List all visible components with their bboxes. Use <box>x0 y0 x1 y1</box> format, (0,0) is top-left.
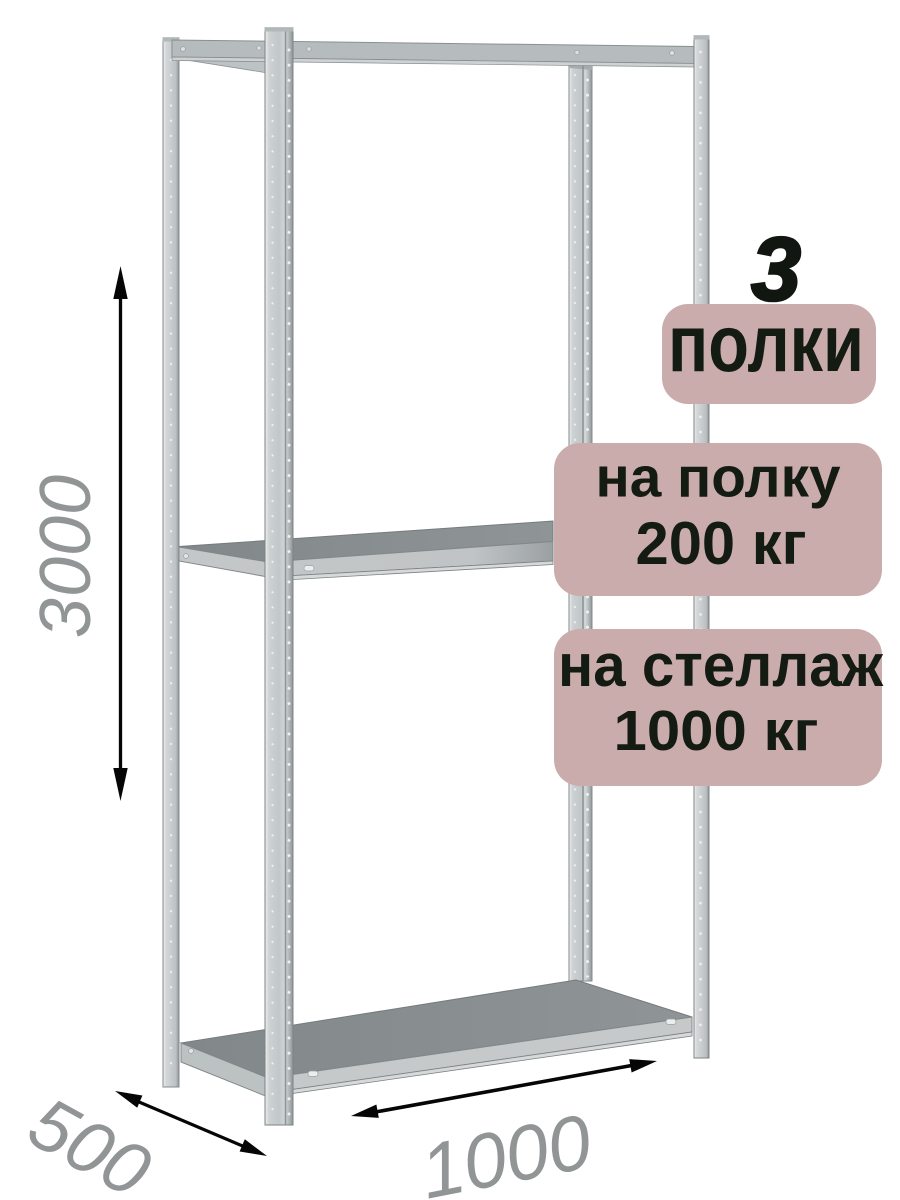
svg-text:3000: 3000 <box>26 474 106 638</box>
svg-text:200 кг: 200 кг <box>636 510 807 577</box>
svg-text:на полку: на полку <box>596 446 841 510</box>
svg-text:полки: полки <box>668 299 864 389</box>
svg-text:на стеллаж: на стеллаж <box>558 632 884 699</box>
svg-text:1000 кг: 1000 кг <box>614 699 819 762</box>
